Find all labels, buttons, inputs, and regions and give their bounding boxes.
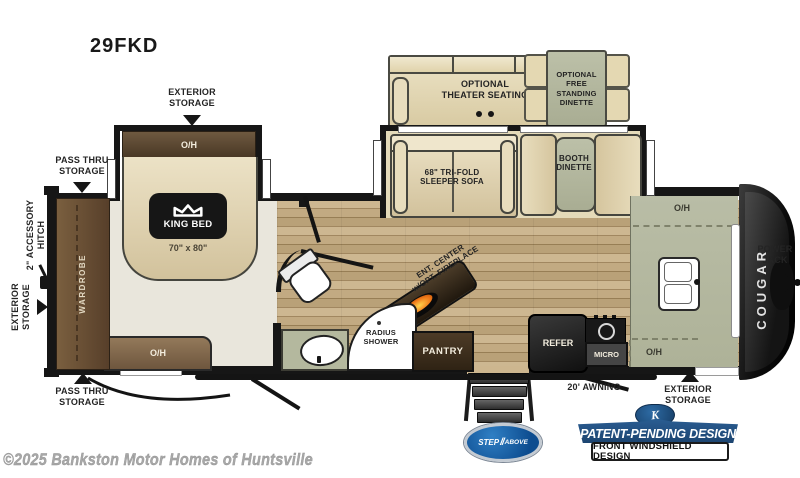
sink-basin [664,262,692,282]
floorplan-canvas: 29FKD O/H KING BED 70" x 80" O/H WARDROB… [0,0,800,478]
microwave: MICRO [585,342,628,367]
bedroom-overhead-cabinet: O/H [122,131,256,159]
callout-exterior-storage-top: EXTERIOR STORAGE [150,87,234,108]
sleeper-sofa-label: 68" TRI-FOLD SLEEPER SOFA [398,168,506,187]
slideout-window [520,126,628,133]
knob-icon [603,315,607,318]
front-windshield-text: FRONT WINDSHIELD DESIGN [593,442,727,461]
shower-drain-icon [377,321,381,325]
awning-arm-left [251,377,301,410]
callout-accessory-hitch: 2" ACCESSORY HITCH [25,195,47,275]
micro-label: MICRO [594,351,619,359]
arrow-up-icon [74,373,92,384]
step [477,412,522,423]
booth-dinette-table [555,137,596,212]
bathroom-wall [273,323,281,368]
kitchen-sink [658,257,700,311]
arrow-down-icon [73,182,91,193]
callout-pass-thru-bottom: PASS THRU STORAGE [42,386,122,407]
page-title: 29FKD [90,36,158,56]
counter-divider [629,340,631,367]
refrigerator: REFER [528,314,588,373]
king-bed-label: KING BED [164,220,213,230]
bedroom-lower-overhead-cabinet: O/H [104,336,212,371]
theater-divider [452,57,454,72]
knob-icon [594,315,598,318]
burner-icon [598,323,615,340]
faucet-icon [317,356,321,363]
callout-pass-thru-top: PASS THRU STORAGE [42,155,122,176]
step [474,399,524,410]
sink-basin [664,284,692,304]
arrow-up-icon [681,371,699,382]
knob-icon [612,315,616,318]
cupholder-icon [476,111,482,117]
slideout-window [398,126,508,133]
booth-dinette-seat-left [520,134,557,216]
counter-divider [632,338,698,340]
watermark: ©2025 Bankston Motor Homes of Huntsville [3,450,313,470]
wardrobe-label: WARDROBE [79,254,87,314]
kitchen-window [695,367,739,376]
step-above-slashes: // [500,437,504,448]
free-standing-dinette-table: OPTIONAL FREE STANDING DINETTE [546,50,607,127]
overhead-label: O/H [181,141,197,150]
step-above-logo: STEP // ABOVE [464,423,542,462]
theater-armrest-left [392,77,409,125]
wardrobe-cabinet: WARDROBE [56,198,110,370]
arrow-right-icon [37,299,48,315]
cooktop [585,318,626,343]
wardrobe-rod [76,205,78,361]
free-standing-dinette-label: OPTIONAL FREE STANDING DINETTE [549,70,605,108]
theater-divider [514,57,516,72]
kitchen-overhead-label: O/H [660,204,704,213]
step-above-text: STEP [478,438,499,447]
top-wall-mid [260,193,388,201]
crown-icon [171,203,205,218]
kitchen-overhead-label: O/H [632,348,676,357]
faucet-icon [694,279,700,285]
callout-awning: 20' AWNING [556,382,632,393]
entry-steps [468,373,530,421]
front-windshield [731,224,740,338]
cupholder-icon [488,111,494,117]
pantry-label: PANTRY [423,347,464,357]
booth-dinette-label: BOOTH DINETTE [534,154,614,173]
cupholders [468,111,502,117]
callout-power-jack: POWER JACK [751,244,799,265]
arrow-down-icon [183,115,201,126]
slideout-window-right [646,140,655,196]
accessory-hitch-receiver [40,276,52,289]
power-jack-tip [794,279,800,286]
radius-shower-label: RADIUS SHOWER [352,329,410,347]
pantry-cabinet: PANTRY [412,331,474,372]
step [472,386,527,397]
counter-divider [633,225,733,227]
patent-pending-banner: PATENT-PENDING DESIGN [578,419,738,443]
callout-exterior-storage-left: EXTERIOR STORAGE [10,274,32,340]
front-windshield-banner: FRONT WINDSHIELD DESIGN [591,442,729,461]
sofa-backrest [392,136,516,152]
king-bed-badge: KING BED [149,193,227,239]
overhead-label: O/H [150,349,166,358]
top-wall-front [642,187,742,196]
refer-label: REFER [543,339,574,348]
slideout-window-left [373,140,382,196]
step-above-text: ABOVE [505,439,528,446]
callout-exterior-storage-bottom: EXTERIOR STORAGE [650,384,726,405]
king-bed-size: 70" x 80" [149,244,227,253]
bed-slideout-window-right [262,159,271,199]
